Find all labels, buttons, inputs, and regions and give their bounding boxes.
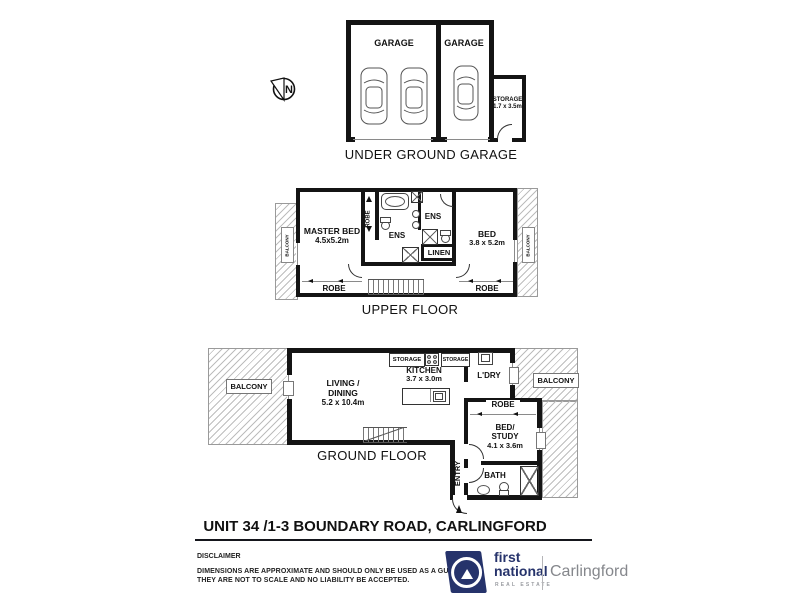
balcony-hatch [542,400,578,498]
balcony-label-box: BALCONY [522,227,535,263]
room-label-bath: BATH [478,471,512,480]
robe-arrow [308,279,313,283]
balcony-label: BALCONY [526,234,531,256]
garage-door [353,139,433,140]
car-icon [358,66,390,126]
address-underline [195,539,592,541]
sink-basin [435,393,443,400]
brand-divider [542,556,543,590]
door-handle-box [509,367,519,384]
balcony-label-box: BALCONY [226,379,272,394]
door-opening [468,461,481,465]
room-label-bed-study: BED/ STUDY 4.1 x 3.6m [478,423,532,451]
wall [421,258,456,261]
address-title: UNIT 34 /1-3 BOUNDARY ROAD, CARLINGFORD [175,518,575,535]
room-label-garage-right: GARAGE [434,38,494,49]
toilet-cistern [440,230,451,236]
balcony-label: BALCONY [285,234,290,256]
bed-dim: 3.8 x 5.2m [464,239,510,248]
north-arrow-icon: N [264,69,304,109]
balcony-hatch [208,348,290,445]
robe-arrow [496,279,501,283]
storage-cupboard: STORAGE [441,353,470,367]
storage-name: STORAGE [492,97,523,104]
window-line [514,240,515,262]
room-label-living-dining: LIVING / DINING 5.2 x 10.4m [313,378,373,407]
toilet-cistern [499,490,509,496]
shower-icon [411,191,423,203]
plan-title-ground: GROUND FLOOR [302,448,442,463]
disclaimer-heading: DISCLAIMER [197,553,241,560]
room-label-kitchen: KITCHEN 3.7 x 3.0m [398,366,450,384]
room-label-entry: ENTRY [451,455,465,491]
door-arc [348,264,362,278]
logo-circle [451,557,482,588]
shower-icon [422,229,438,245]
balcony-label-box: BALCONY [281,227,294,263]
wall [346,20,494,25]
room-label-linen: LINEN [423,249,455,258]
room-label-storage: STORAGE 1.7 x 3.5m [492,97,523,111]
master-bed-dim: 4.5x5.2m [300,236,364,245]
floor-plan-page: N GARAGE GARAGE STORAGE 1.7 x 3.5m UND [0,0,800,600]
shower-icon [520,466,539,496]
master-bed-name: MASTER BED [300,226,364,236]
door-arc [456,264,470,278]
basin-icon [412,221,420,229]
wall [346,20,351,142]
room-label-robe-right: ROBE [469,284,505,293]
entry-arrow [456,505,462,513]
plan-title-garage: UNDER GROUND GARAGE [341,147,521,162]
shower-icon [402,247,419,263]
wall [489,75,526,79]
brand-office-name: Carlingford [550,563,628,581]
window-line [297,243,298,265]
car-icon [398,66,430,126]
robe-arrow [477,412,482,416]
door-opening [464,382,468,398]
room-label-master-bed: MASTER BED 4.5x5.2m [300,226,364,245]
brand-tagline: REAL ESTATE [495,582,552,588]
stairs [368,279,424,295]
room-label-ens-master: ENS [384,231,410,240]
wall [296,188,517,192]
room-label-robe-left: ROBE [316,284,352,293]
car-icon [451,64,481,122]
door-handle-box [283,381,294,396]
room-label-robe: ROBE [486,400,520,409]
disclaimer-line2: THEY ARE NOT TO SCALE AND NO LIABILITY B… [197,577,409,584]
basin-icon [412,210,420,218]
room-label-robe-master: ROBE [360,202,378,236]
robe-arrow [338,279,343,283]
storage-cupboard: STORAGE [389,353,425,367]
door-arc [440,194,453,207]
room-label-garage-left: GARAGE [364,38,424,49]
door-arc [497,124,512,139]
garage-door [445,139,490,140]
robe-arrow [468,279,473,283]
basin-icon [477,485,490,495]
stairs-direction-line [363,427,407,441]
room-label-bed: BED 3.8 x 5.2m [464,229,510,248]
laundry-tub-basin [481,354,490,362]
plan-title-upper: UPPER FLOOR [340,302,480,317]
bathtub-basin [385,196,405,207]
island-divider [430,389,431,402]
disclaimer-line1: DIMENSIONS ARE APPROXIMATE AND SHOULD ON… [197,568,460,575]
storage-dim: 1.7 x 3.5m [492,104,523,111]
door-handle-box [536,432,546,449]
room-label-laundry: L'DRY [473,371,505,380]
north-letter: N [285,84,293,96]
room-label-ens-second: ENS [420,212,446,221]
brand-name-national: national [494,564,548,578]
robe-arrow [513,412,518,416]
balcony-label-box: BALCONY [533,373,579,388]
stove-icon [425,353,439,366]
first-national-logo-icon [445,551,487,593]
toilet-cistern [380,217,391,223]
logo-sail-triangle [460,568,472,578]
